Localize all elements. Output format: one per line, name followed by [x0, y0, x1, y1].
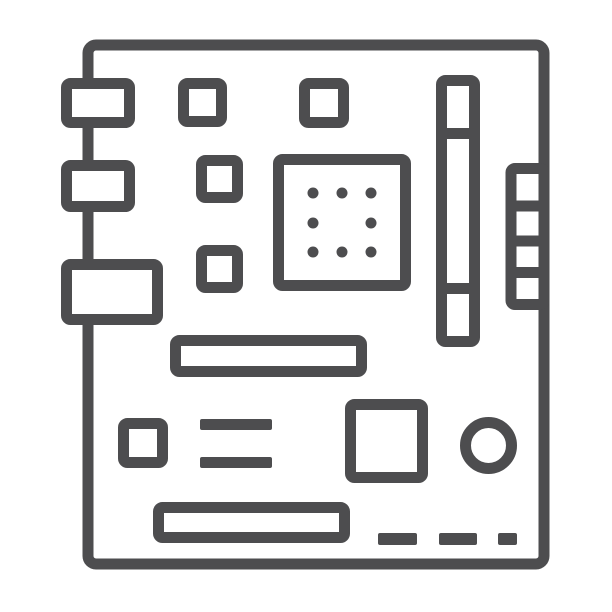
cpu-pin-dot [337, 188, 348, 199]
rear-io-port-bottom [67, 265, 158, 320]
cpu-pin-dot [308, 188, 319, 199]
board-components [67, 81, 550, 546]
cpu-pin-dot [366, 188, 377, 199]
jumper-square [124, 424, 163, 463]
cpu-pin-dot [308, 218, 319, 229]
jumper-pin-bar-1 [200, 419, 272, 430]
solder-pads [378, 533, 517, 545]
solder-pad-dash-1 [378, 533, 417, 545]
cpu-pin-dot [366, 247, 377, 258]
cpu-pin-dot [366, 218, 377, 229]
chip-square-4 [202, 251, 238, 288]
cpu-pin-dot [337, 247, 348, 258]
rear-io-port-middle [67, 166, 130, 207]
jumper-pin-bar-2 [200, 457, 272, 468]
chipset-square [351, 405, 423, 478]
expansion-slot-upper [176, 341, 362, 372]
solder-pad-dash-2 [439, 533, 477, 545]
icon-canvas [0, 0, 612, 612]
chip-square-1 [184, 84, 222, 122]
chip-square-2 [305, 84, 344, 123]
solder-pad-dash-3 [498, 533, 517, 545]
expansion-slot-lower [159, 508, 345, 538]
ram-slot [442, 81, 475, 342]
motherboard-icon [0, 0, 612, 612]
cpu-socket [279, 160, 406, 286]
rear-io-port-top [67, 84, 130, 123]
cmos-battery-circle [466, 423, 512, 469]
jumper-pin-bars [200, 419, 272, 468]
chip-square-3 [202, 161, 238, 198]
cpu-pin-dot [308, 247, 319, 258]
